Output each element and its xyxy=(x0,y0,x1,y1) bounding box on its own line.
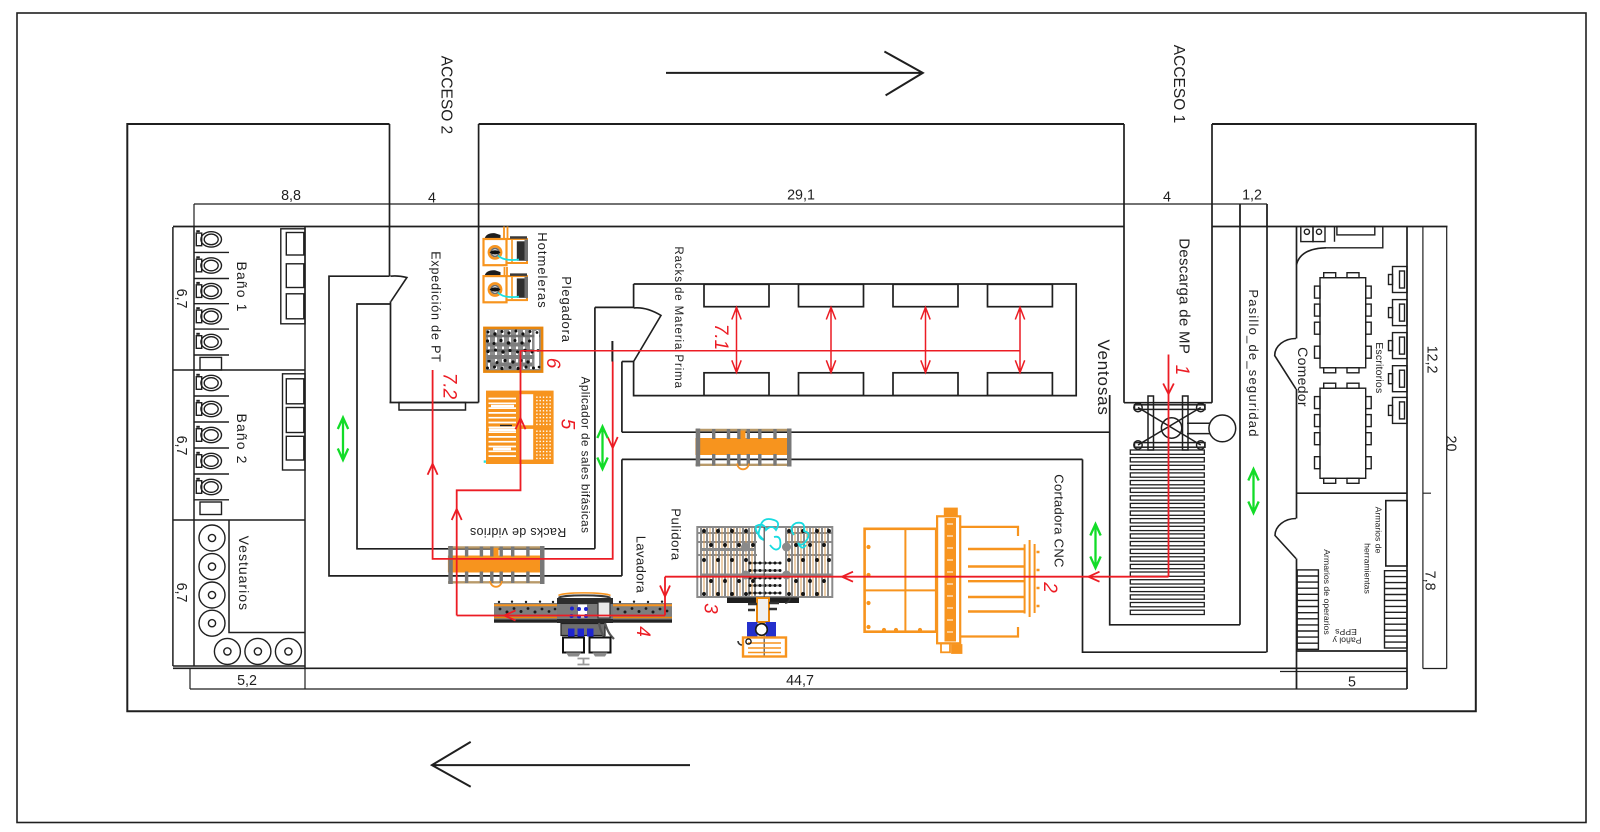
svg-text:Lavadora: Lavadora xyxy=(634,536,649,594)
svg-text:Aplicador de sales bifásicas: Aplicador de sales bifásicas xyxy=(579,377,592,534)
svg-text:Racks de vidrios: Racks de vidrios xyxy=(470,525,567,539)
svg-text:1,2: 1,2 xyxy=(1242,188,1262,204)
svg-text:6: 6 xyxy=(542,358,563,369)
svg-text:Baño 2: Baño 2 xyxy=(234,414,250,465)
svg-text:6,7: 6,7 xyxy=(173,436,189,456)
svg-text:7.1: 7.1 xyxy=(710,324,731,350)
svg-text:44,7: 44,7 xyxy=(786,673,814,689)
svg-text:12,2: 12,2 xyxy=(1424,346,1440,374)
svg-text:Racks de Materia Prima: Racks de Materia Prima xyxy=(672,246,684,389)
svg-text:Baño 1: Baño 1 xyxy=(234,262,250,313)
svg-text:Pulidora: Pulidora xyxy=(669,508,684,561)
svg-text:Vestuarios: Vestuarios xyxy=(236,536,252,611)
svg-text:ACCESO 2: ACCESO 2 xyxy=(437,56,454,134)
svg-text:Expedición de PT: Expedición de PT xyxy=(429,251,443,363)
svg-text:Escritorios: Escritorios xyxy=(1373,342,1385,393)
svg-text:Armarios de: Armarios de xyxy=(1373,507,1383,554)
svg-text:7,8: 7,8 xyxy=(1422,571,1438,591)
svg-text:4: 4 xyxy=(1163,190,1171,206)
svg-text:Plegadora: Plegadora xyxy=(559,276,574,342)
svg-text:4: 4 xyxy=(632,626,653,637)
svg-text:5: 5 xyxy=(557,419,578,430)
svg-text:3: 3 xyxy=(700,603,721,614)
svg-text:Hotmeleras: Hotmeleras xyxy=(535,232,550,308)
svg-text:2: 2 xyxy=(1039,581,1060,593)
svg-text:Ventosas: Ventosas xyxy=(1094,339,1113,415)
svg-text:29,1: 29,1 xyxy=(787,188,815,204)
svg-text:6,7: 6,7 xyxy=(173,289,189,309)
svg-text:ACCESO 1: ACCESO 1 xyxy=(1170,45,1187,123)
svg-text:20: 20 xyxy=(1443,436,1459,452)
svg-text:4: 4 xyxy=(428,191,436,207)
svg-text:5,2: 5,2 xyxy=(237,673,257,689)
svg-text:Cortadora CNC: Cortadora CNC xyxy=(1052,474,1067,567)
svg-text:6,7: 6,7 xyxy=(173,583,189,603)
svg-text:EPPs: EPPs xyxy=(1334,627,1356,637)
svg-text:8,8: 8,8 xyxy=(281,188,301,204)
svg-text:Armarios de operarios: Armarios de operarios xyxy=(1322,549,1332,635)
svg-text:Pasillo_de_seguridad: Pasillo_de_seguridad xyxy=(1246,289,1261,437)
svg-text:herramientas: herramientas xyxy=(1362,543,1372,594)
svg-text:7.2: 7.2 xyxy=(439,373,460,400)
svg-text:Comedor: Comedor xyxy=(1295,347,1311,407)
svg-text:Descarga de MP: Descarga de MP xyxy=(1176,238,1193,354)
svg-text:1: 1 xyxy=(1171,365,1192,376)
svg-text:5: 5 xyxy=(1348,675,1356,691)
